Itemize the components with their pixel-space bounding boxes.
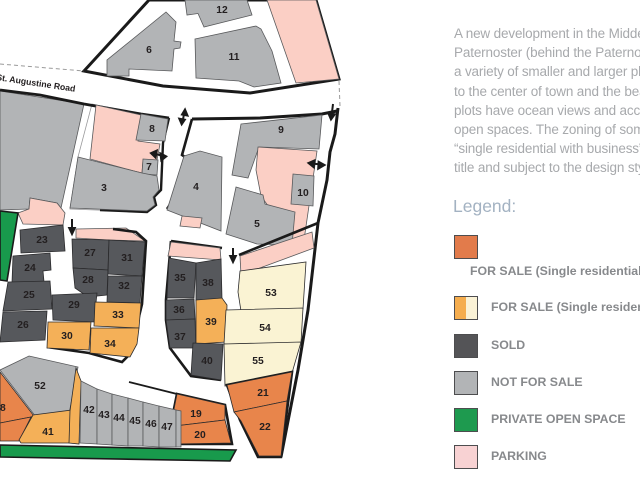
svg-text:35: 35 (174, 273, 186, 284)
svg-text:41: 41 (42, 427, 54, 438)
svg-text:34: 34 (104, 339, 116, 350)
svg-text:32: 32 (118, 281, 130, 292)
svg-text:27: 27 (84, 248, 96, 259)
svg-text:53: 53 (265, 288, 277, 299)
svg-text:30: 30 (61, 331, 73, 342)
svg-text:29: 29 (68, 300, 80, 311)
svg-text:12: 12 (216, 5, 228, 16)
svg-text:22: 22 (259, 422, 271, 433)
svg-text:40: 40 (201, 356, 213, 367)
svg-text:25: 25 (23, 290, 35, 301)
svg-text:8: 8 (149, 124, 155, 135)
svg-text:4: 4 (193, 182, 199, 193)
svg-text:48: 48 (0, 403, 6, 414)
svg-text:6: 6 (146, 45, 152, 56)
svg-text:20: 20 (194, 430, 206, 441)
svg-text:26: 26 (17, 320, 29, 331)
svg-text:46: 46 (145, 419, 157, 430)
svg-text:9: 9 (278, 125, 284, 136)
svg-text:23: 23 (36, 235, 48, 246)
svg-text:47: 47 (161, 422, 173, 433)
svg-text:7: 7 (146, 162, 152, 173)
svg-text:24: 24 (24, 263, 36, 274)
svg-text:19: 19 (190, 409, 202, 420)
svg-text:42: 42 (83, 405, 95, 416)
svg-text:37: 37 (174, 332, 186, 343)
svg-text:45: 45 (129, 416, 141, 427)
svg-text:33: 33 (112, 310, 124, 321)
svg-text:31: 31 (121, 253, 133, 264)
svg-text:39: 39 (205, 317, 217, 328)
svg-text:55: 55 (252, 356, 264, 367)
svg-text:54: 54 (259, 323, 271, 334)
svg-text:43: 43 (98, 410, 110, 421)
svg-text:52: 52 (34, 381, 46, 392)
svg-text:44: 44 (113, 413, 125, 424)
svg-text:36: 36 (173, 305, 185, 316)
svg-text:28: 28 (82, 275, 94, 286)
svg-text:10: 10 (297, 188, 309, 199)
svg-text:38: 38 (202, 278, 214, 289)
svg-text:5: 5 (254, 219, 260, 230)
svg-text:11: 11 (229, 52, 240, 63)
svg-text:3: 3 (101, 183, 107, 194)
svg-text:21: 21 (257, 388, 269, 399)
